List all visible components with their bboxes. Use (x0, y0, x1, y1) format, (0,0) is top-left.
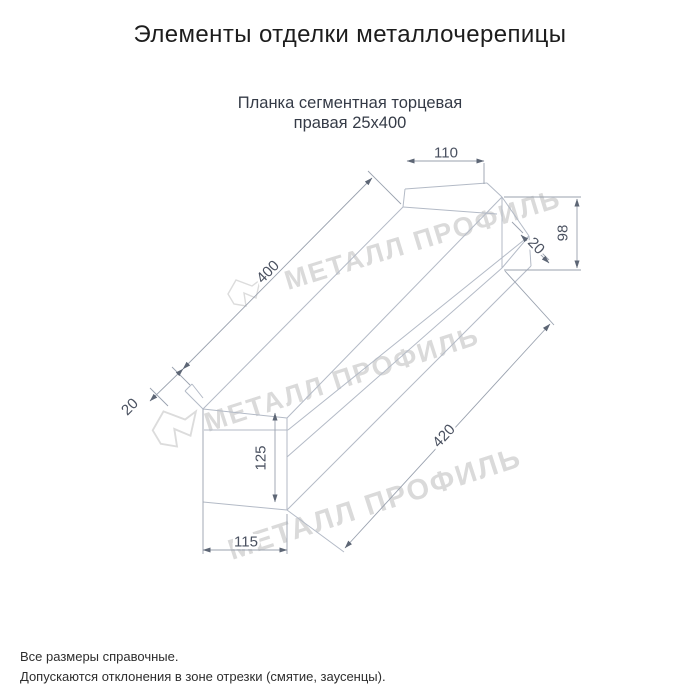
footnotes: Все размеры справочные. Допускаются откл… (20, 647, 386, 687)
dim-label-125: 125 (253, 445, 270, 470)
dim-label-110: 110 (434, 145, 458, 162)
watermark-group: МЕТАЛЛ ПРОФИЛЬ МЕТАЛЛ ПРОФИЛЬ МЕТАЛЛ ПРО… (153, 183, 565, 567)
footnote-line2: Допускаются отклонения в зоне отрезки (с… (20, 667, 386, 687)
catalog-drawing-page: { "page": { "title": "Элементы отделки м… (0, 0, 700, 700)
dim-label-20-left: 20 (118, 395, 142, 419)
brand-logo-icon (228, 280, 260, 306)
dim-label-420: 420 (429, 421, 459, 451)
watermark-text-middle: МЕТАЛЛ ПРОФИЛЬ (201, 320, 484, 437)
technical-drawing: МЕТАЛЛ ПРОФИЛЬ МЕТАЛЛ ПРОФИЛЬ МЕТАЛЛ ПРО… (0, 0, 700, 700)
dim-label-115: 115 (234, 534, 258, 551)
footnote-line1: Все размеры справочные. (20, 647, 386, 667)
dim-label-98: 98 (555, 225, 572, 242)
brand-logo-icon (153, 411, 196, 446)
